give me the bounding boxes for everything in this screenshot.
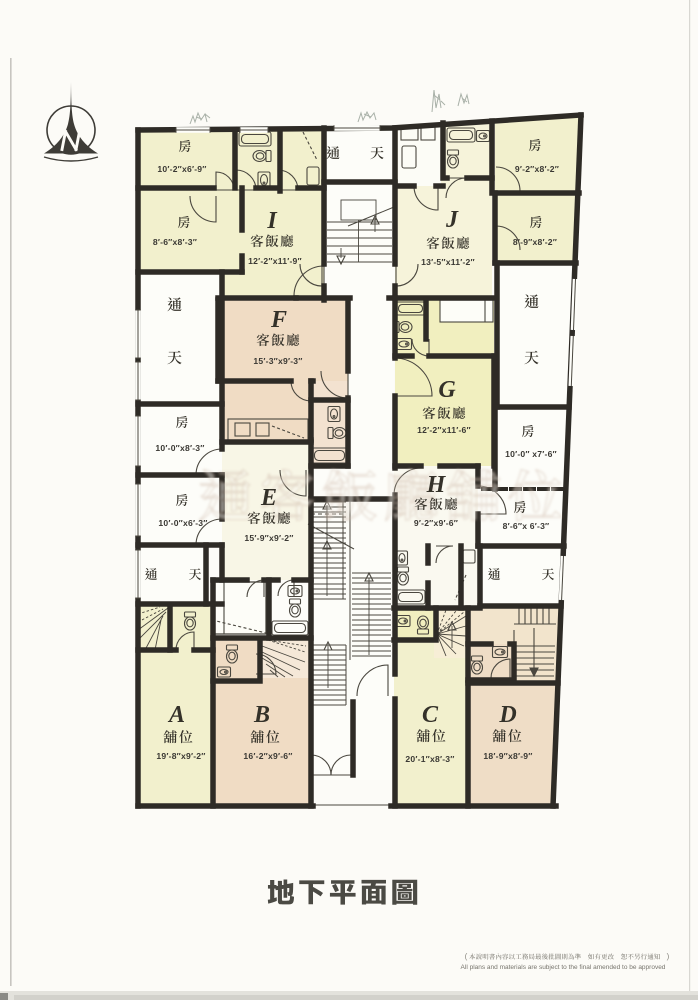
svg-text:8′-6″x 6′-3″: 8′-6″x 6′-3″ [503, 521, 550, 531]
svg-text:): ) [667, 952, 670, 961]
svg-text:(: ( [465, 952, 468, 961]
svg-text:15′-9″x9′-2″: 15′-9″x9′-2″ [244, 533, 293, 543]
svg-text:E: E [260, 485, 277, 511]
svg-text:8′-9″x8′-2″: 8′-9″x8′-2″ [513, 237, 557, 247]
svg-text:C: C [422, 702, 439, 728]
svg-text:F: F [270, 307, 287, 333]
svg-text:9′-2″x9′-6″: 9′-2″x9′-6″ [414, 518, 458, 528]
svg-text:12′-2″x11′-9″: 12′-2″x11′-9″ [248, 256, 302, 266]
svg-text:8′-6″x8′-3″: 8′-6″x8′-3″ [153, 237, 197, 247]
svg-text:B: B [253, 702, 270, 728]
svg-text:12′-2″x11′-6″: 12′-2″x11′-6″ [417, 425, 471, 435]
svg-text:15′-3″x9′-3″: 15′-3″x9′-3″ [253, 356, 302, 366]
svg-text:10′-2″x6′-9″: 10′-2″x6′-9″ [157, 164, 206, 174]
svg-text:20′-1″x8′-3″: 20′-1″x8′-3″ [405, 754, 454, 764]
svg-text:10′-0″ x7′-6″: 10′-0″ x7′-6″ [505, 449, 557, 459]
svg-text:10′-0″x6′-3″: 10′-0″x6′-3″ [158, 518, 207, 528]
svg-text:18′-9″x8′-9″: 18′-9″x8′-9″ [483, 751, 532, 761]
svg-text:H: H [426, 472, 447, 498]
svg-text:10′-0″x8′-3″: 10′-0″x8′-3″ [155, 443, 204, 453]
svg-text:I: I [266, 208, 278, 234]
svg-text:13′-5″x11′-2″: 13′-5″x11′-2″ [421, 257, 475, 267]
svg-text:D: D [498, 702, 516, 728]
svg-text:All plans and materials are su: All plans and materials are subject to t… [461, 964, 666, 971]
svg-text:A: A [167, 702, 185, 728]
svg-text:G: G [438, 377, 456, 403]
svg-text:19′-8″x9′-2″: 19′-8″x9′-2″ [156, 751, 205, 761]
svg-text:J: J [445, 207, 459, 233]
svg-text:9′-2″x8′-2″: 9′-2″x8′-2″ [515, 164, 559, 174]
svg-text:16′-2″x9′-6″: 16′-2″x9′-6″ [243, 751, 292, 761]
